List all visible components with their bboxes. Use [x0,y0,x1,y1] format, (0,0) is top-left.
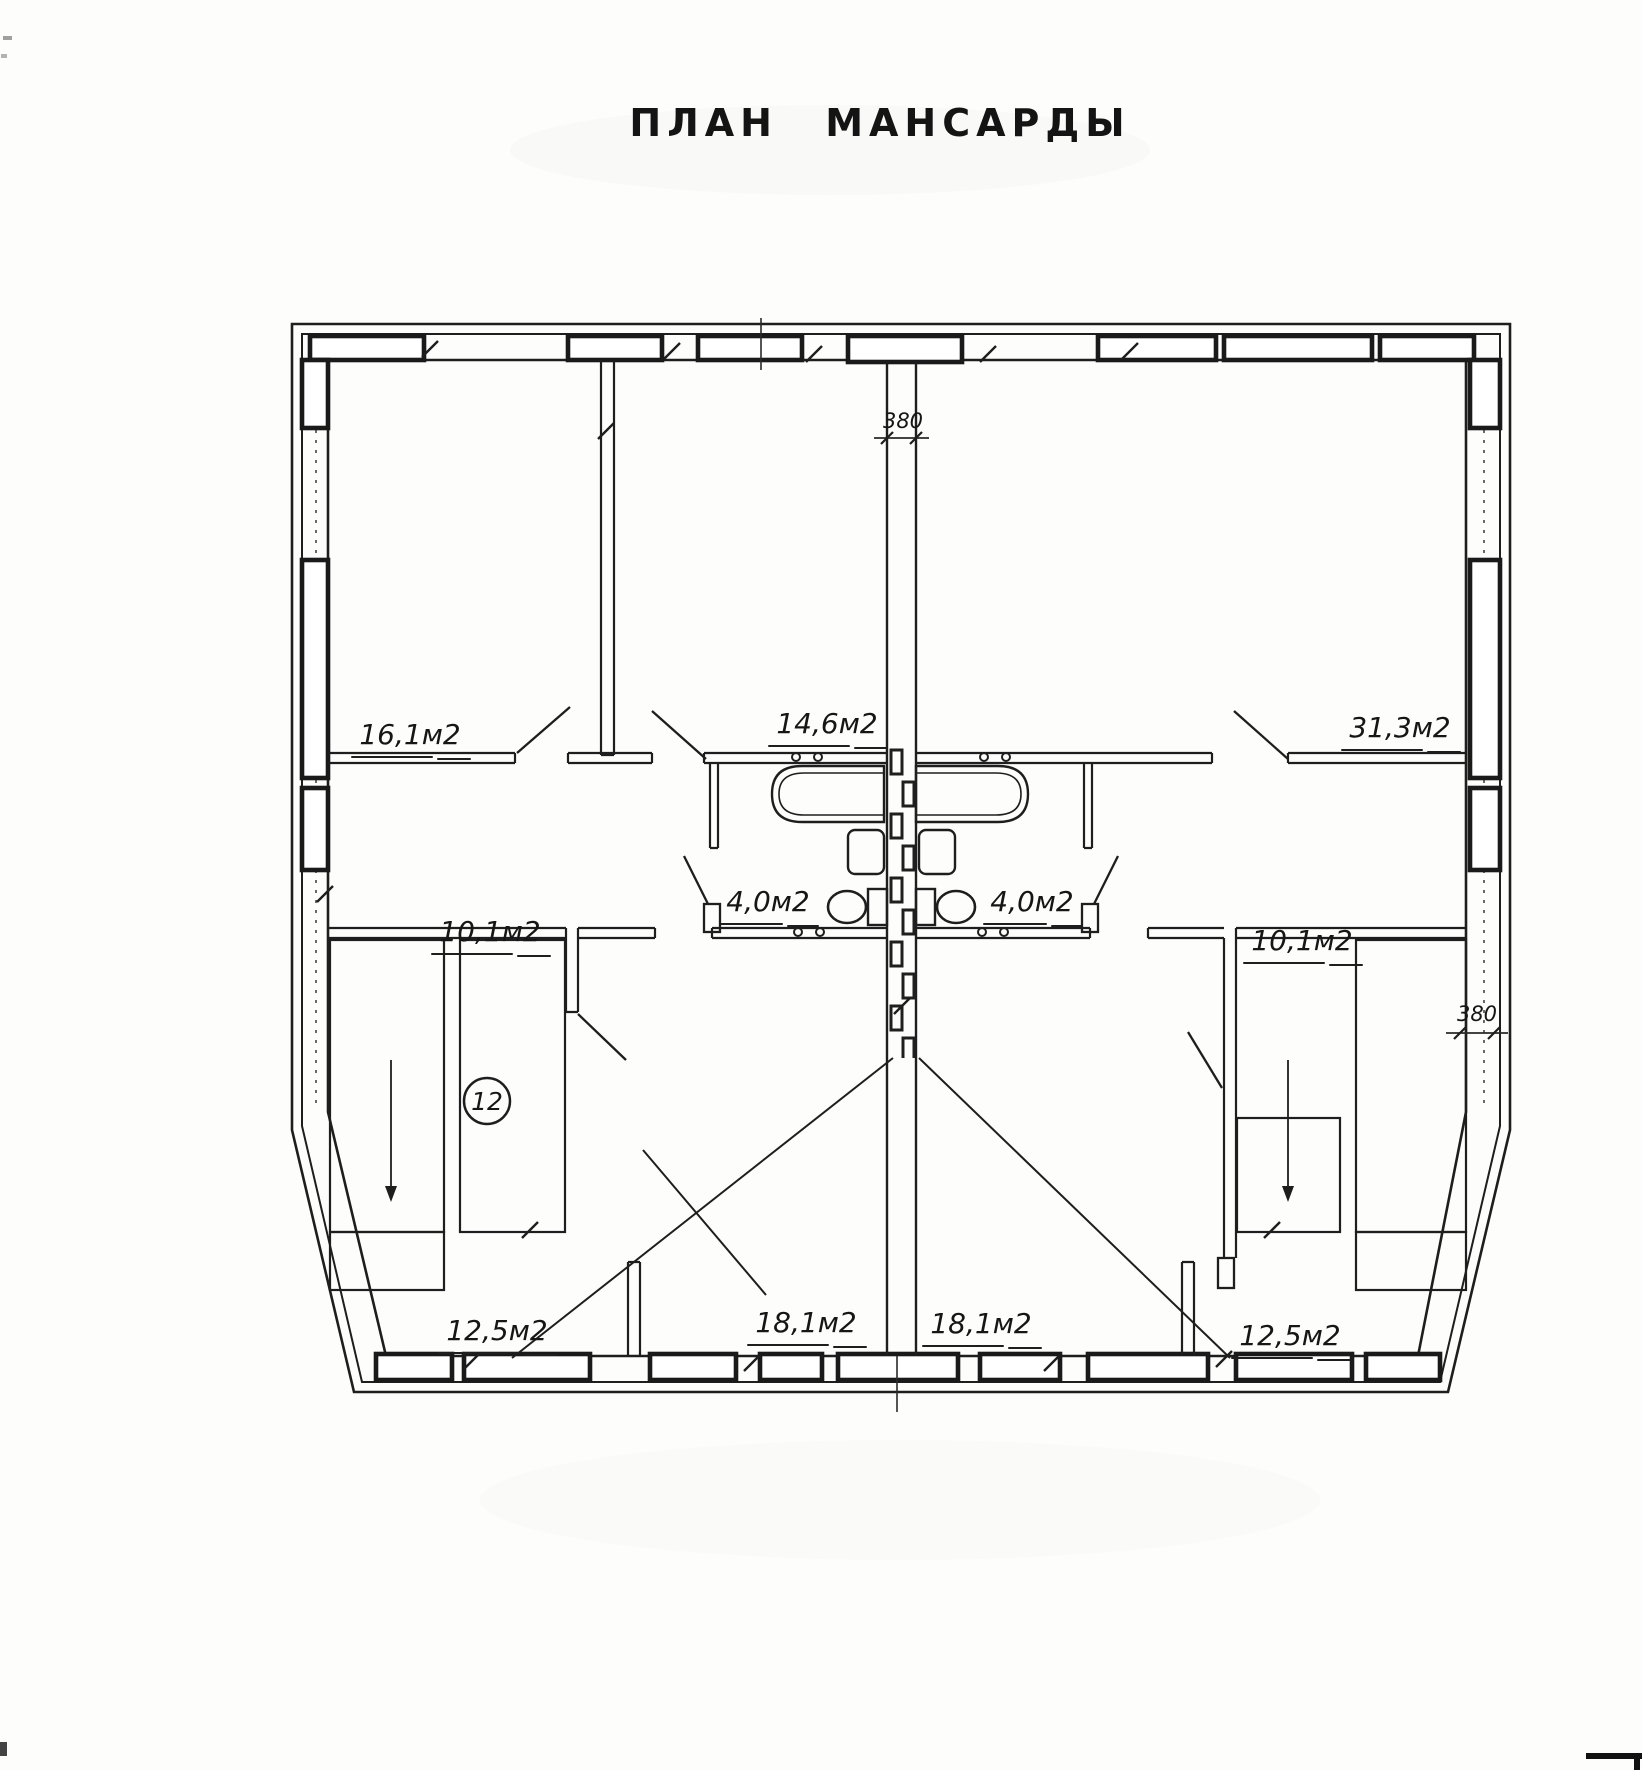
room-area-label-14-6: 14,6м2 [776,707,877,740]
stair-number-badge: 12 [464,1078,510,1124]
room-area-label-hall-right: 10,1м2 [1251,924,1352,957]
toilet-bowl-left [828,891,866,923]
room-area-label-hall-left: 10,1м2 [439,915,540,948]
room-area-label-12-5-right: 12,5м2 [1239,1319,1340,1352]
window-left-3 [302,788,328,870]
window-right-2 [1470,560,1500,778]
window-top-4 [1098,336,1216,360]
window-bottom-3 [650,1354,736,1380]
stair-number: 12 [471,1087,503,1116]
masonry-hatch [888,746,916,1058]
window-left-2 [302,560,328,778]
room-area-label-bath-left: 4,0м2 [726,885,809,918]
party-wall-bottom-cap [838,1354,958,1380]
window-bottom-6 [1088,1354,1208,1380]
window-bottom-8 [1366,1354,1440,1380]
room-area-label-18-1-left: 18,1м2 [755,1306,856,1339]
scanned-blueprint-sheet: ПЛАН МАНСАРДЫ [0,0,1642,1770]
dimension-right: 380 [1446,1002,1508,1039]
toilet-tank-right [916,889,935,925]
toilet-tank-left [868,889,887,925]
window-top-2 [568,336,662,360]
staircase-right [1237,940,1466,1290]
wall-thickness-label: 380 [883,409,923,433]
stair-direction-arrow [1282,1186,1294,1202]
stair-direction-arrow [385,1186,397,1202]
window-bottom-1 [376,1354,452,1380]
room-area-label-31-3: 31,3м2 [1349,711,1450,744]
window-right-3 [1470,788,1500,870]
door-jamb [1218,1258,1234,1288]
staircase-left [330,940,565,1290]
window-bottom-2 [464,1354,590,1380]
sink-left [848,830,884,874]
window-bottom-4 [760,1354,822,1380]
floor-plan-drawing: ПЛАН МАНСАРДЫ [0,0,1642,1770]
room-area-label-18-1-right: 18,1м2 [930,1307,1031,1340]
bathtub-right [916,766,1028,822]
drawing-title: ПЛАН МАНСАРДЫ [629,101,1130,145]
sink-right [919,830,955,874]
room-area-label-16-1: 16,1м2 [359,718,460,751]
party-wall-top-cap [848,336,962,362]
roof-slope-lines [512,1058,1230,1358]
room-area-label-bath-right: 4,0м2 [990,885,1073,918]
window-top-6 [1380,336,1474,360]
wall-thickness-label: 380 [1457,1002,1497,1026]
window-left-1 [302,360,328,428]
room-area-label-12-5-left: 12,5м2 [446,1314,547,1347]
window-top-5 [1224,336,1372,360]
toilet-bowl-right [937,891,975,923]
window-top-3 [698,336,802,360]
window-top-1 [310,336,424,360]
central-party-wall [761,318,916,1412]
bathtub-left [772,766,884,822]
dimension-top: 380 [874,409,929,444]
tick-marks [317,341,1280,1371]
window-right-1 [1470,360,1500,428]
